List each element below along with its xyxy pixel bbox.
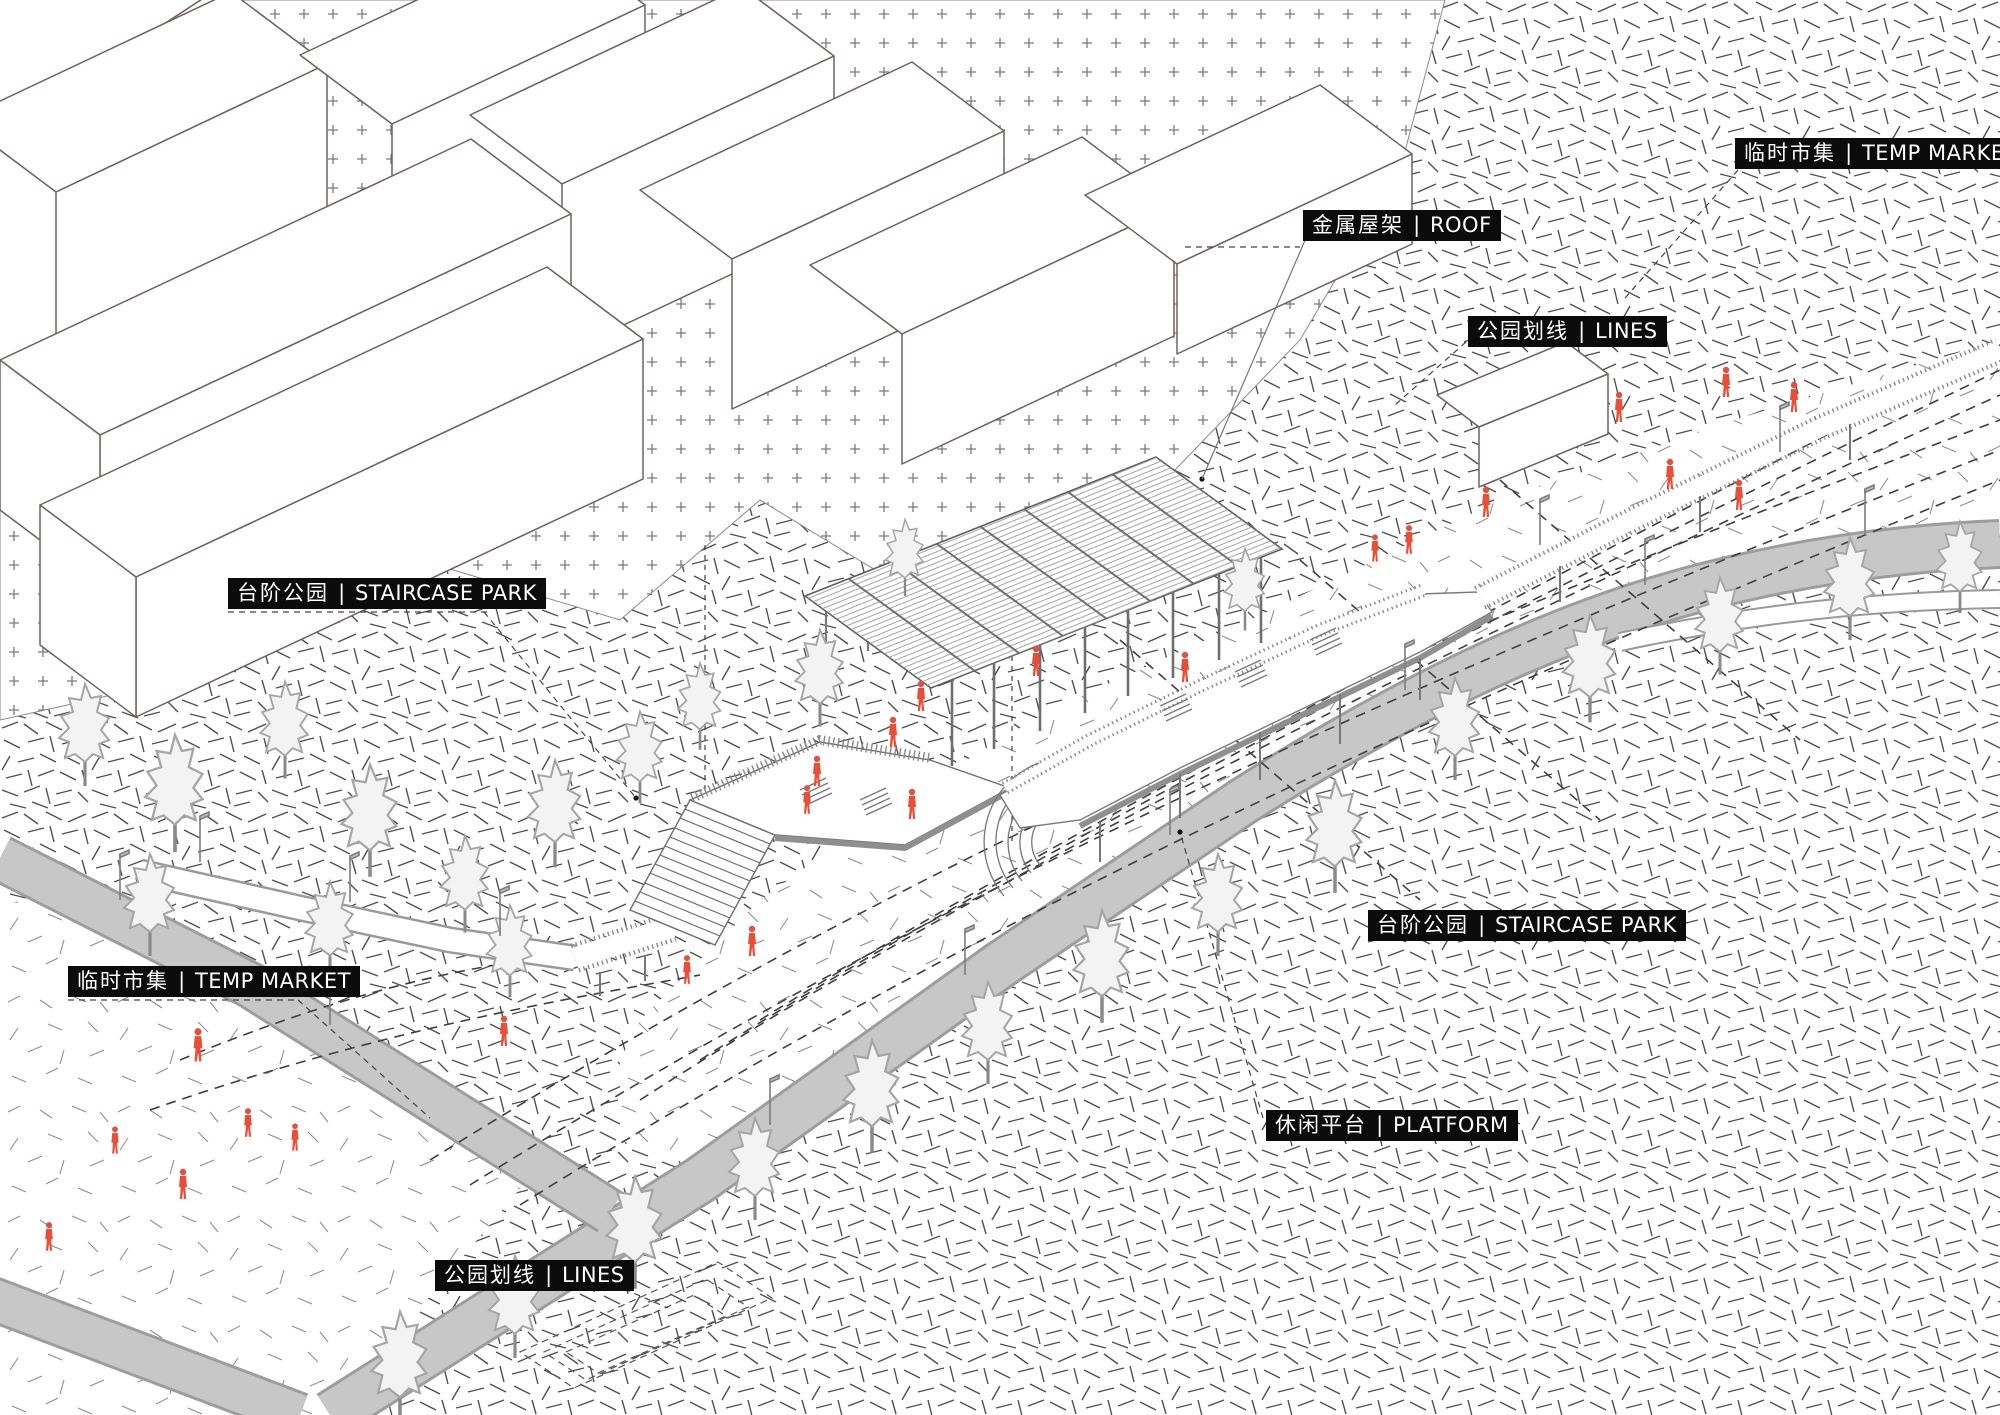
label-separator: | — [329, 581, 355, 605]
label-staircase-park-west: 台阶公园 | STAIRCASE PARK — [228, 578, 546, 609]
label-zh: 临时市集 — [1744, 141, 1836, 165]
label-en: STAIRCASE PARK — [1495, 913, 1677, 937]
label-platform: 休闲平台 | PLATFORM — [1266, 1110, 1518, 1141]
label-en: PLATFORM — [1393, 1113, 1509, 1137]
label-en: STAIRCASE PARK — [355, 581, 537, 605]
label-zh: 台阶公园 — [237, 581, 329, 605]
label-zh: 休闲平台 — [1275, 1113, 1367, 1137]
label-en: LINES — [562, 1263, 625, 1287]
label-separator: | — [536, 1263, 562, 1287]
label-zh: 金属屋架 — [1312, 213, 1404, 237]
label-zh: 台阶公园 — [1377, 913, 1469, 937]
label-en: ROOF — [1430, 213, 1492, 237]
site-diagram-stage: 临时市集 | TEMP MARKET 金属屋架 | ROOF 公园划线 | LI… — [0, 0, 2000, 1415]
label-roof: 金属屋架 | ROOF — [1303, 210, 1501, 241]
label-separator: | — [1836, 141, 1862, 165]
label-en: LINES — [1595, 319, 1658, 343]
label-temp-market-west: 临时市集 | TEMP MARKET — [68, 966, 360, 997]
label-separator: | — [1469, 913, 1495, 937]
label-zh: 公园划线 — [444, 1263, 536, 1287]
label-separator: | — [1367, 1113, 1393, 1137]
label-en: TEMP MARKET — [195, 969, 351, 993]
axonometric-drawing — [0, 0, 2000, 1415]
label-lines-south: 公园划线 | LINES — [435, 1260, 634, 1291]
label-en: TEMP MARKET — [1862, 141, 2000, 165]
label-separator: | — [169, 969, 195, 993]
label-temp-market-ne: 临时市集 | TEMP MARKET — [1735, 138, 2000, 169]
label-zh: 临时市集 — [77, 969, 169, 993]
label-separator: | — [1569, 319, 1595, 343]
label-zh: 公园划线 — [1477, 319, 1569, 343]
label-separator: | — [1404, 213, 1430, 237]
label-lines-east: 公园划线 | LINES — [1468, 316, 1667, 347]
label-staircase-park-east: 台阶公园 | STAIRCASE PARK — [1368, 910, 1686, 941]
